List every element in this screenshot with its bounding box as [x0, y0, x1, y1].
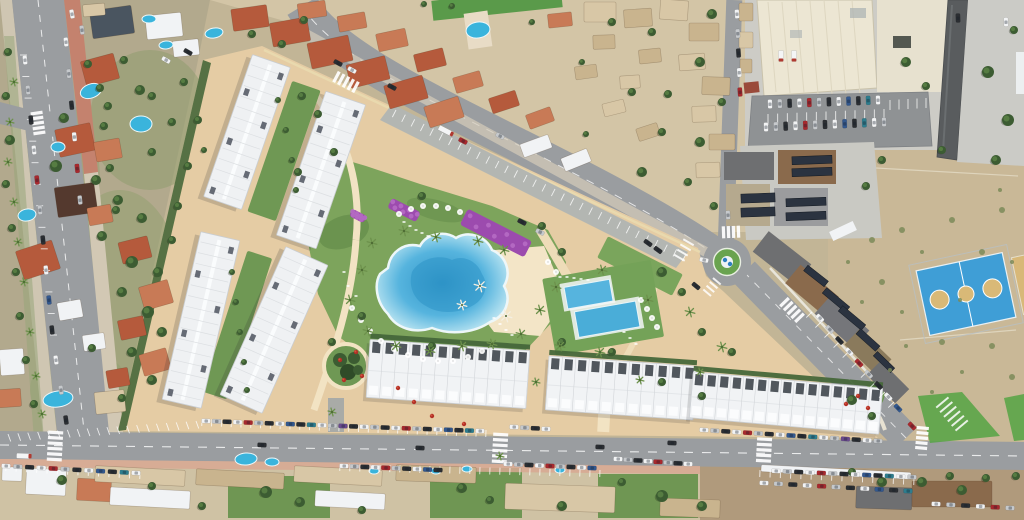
sun-lounger	[505, 329, 508, 331]
umbrella-pole	[640, 299, 641, 300]
sun-lounger	[421, 232, 424, 234]
car	[509, 425, 518, 430]
car	[349, 424, 358, 429]
tree-highlight	[419, 193, 423, 197]
umbrella-pole	[380, 340, 381, 341]
flowering-shrub-highlight	[866, 406, 868, 408]
tree-highlight	[202, 148, 205, 151]
car	[976, 504, 985, 509]
pergola	[770, 381, 779, 393]
sun-lounger	[347, 285, 350, 287]
villa-roof	[57, 299, 84, 321]
car	[286, 422, 295, 427]
car	[759, 481, 768, 486]
roof-unit	[790, 30, 802, 38]
flowering-shrub-highlight	[844, 402, 846, 404]
tree-highlight	[5, 49, 9, 53]
tree-highlight	[902, 58, 907, 63]
tree-highlight	[450, 4, 453, 7]
tree-highlight	[918, 478, 923, 483]
tree-highlight	[638, 168, 643, 173]
tree-highlight	[1004, 116, 1010, 122]
car	[817, 471, 826, 476]
car	[360, 465, 369, 470]
car	[531, 426, 540, 431]
car	[37, 205, 42, 214]
sun-lounger	[629, 337, 632, 339]
terrace	[628, 404, 638, 414]
car	[725, 210, 730, 219]
terrace	[408, 388, 418, 398]
kiosk-roof	[744, 81, 760, 94]
townhouse-row	[542, 350, 697, 424]
car	[876, 95, 881, 104]
car	[819, 435, 828, 440]
tree-highlight	[679, 289, 683, 293]
roundabout-sculpture-detail	[723, 258, 727, 262]
car	[360, 424, 369, 429]
tree-highlight	[148, 376, 153, 381]
car	[503, 462, 512, 467]
tree-highlight	[249, 31, 253, 35]
house-roof	[739, 3, 753, 21]
car	[896, 474, 905, 479]
tree-highlight	[708, 10, 713, 15]
house-roof	[623, 8, 652, 28]
house-roof	[547, 12, 572, 28]
terrace	[515, 396, 525, 406]
aerial-photo-stage	[0, 0, 1024, 520]
pergola	[605, 362, 614, 374]
tree-highlight	[98, 232, 103, 237]
car	[328, 423, 337, 428]
pergola	[871, 389, 880, 401]
swimming-pool	[130, 116, 152, 132]
flowering-shrub-highlight	[462, 422, 464, 424]
car	[37, 465, 46, 470]
terrace	[382, 386, 392, 396]
townhouse-row	[363, 333, 530, 412]
sun-lounger	[623, 331, 626, 333]
car	[254, 421, 263, 426]
house-roof	[315, 490, 386, 510]
house-roof	[692, 106, 717, 123]
car	[807, 98, 812, 107]
umbrella-pole	[646, 308, 647, 309]
pergola	[645, 365, 654, 377]
terrace	[448, 391, 458, 401]
shrub	[939, 339, 945, 345]
tree-highlight	[52, 162, 58, 168]
tree-highlight	[878, 478, 883, 483]
umbrella-pole	[435, 205, 436, 206]
car	[643, 459, 652, 464]
tree-highlight	[181, 79, 185, 83]
car	[577, 465, 586, 470]
house-roof	[709, 134, 735, 150]
shrub	[899, 227, 905, 233]
car	[793, 121, 798, 130]
car	[371, 465, 380, 470]
umbrella-pole	[467, 356, 468, 357]
car	[233, 420, 242, 425]
sun-lounger	[573, 277, 576, 279]
terrace	[818, 417, 828, 427]
car	[851, 472, 860, 477]
sun-lounger	[403, 221, 406, 223]
car	[108, 469, 117, 474]
terrace	[691, 406, 701, 416]
shrub	[999, 207, 1005, 213]
car	[797, 434, 806, 439]
villa-roof	[0, 388, 22, 407]
tree-highlight	[138, 214, 143, 219]
tree-highlight	[947, 473, 951, 477]
tree-highlight	[279, 41, 283, 45]
car	[49, 466, 58, 471]
umbrella-pole	[351, 307, 352, 308]
car	[423, 467, 432, 472]
shrub	[900, 310, 904, 314]
umbrella-pole	[422, 358, 423, 359]
tree-highlight	[992, 156, 997, 161]
car	[13, 464, 22, 469]
tree-highlight	[649, 29, 653, 33]
shrub	[958, 298, 962, 302]
tree-highlight	[584, 132, 587, 135]
car	[77, 195, 82, 204]
car	[768, 99, 773, 108]
tree-highlight	[359, 313, 363, 317]
tree-highlight	[699, 393, 703, 397]
garden-tree-cluster	[353, 365, 363, 375]
sun-lounger	[355, 295, 358, 297]
shrub	[1009, 374, 1015, 380]
terrace	[755, 411, 765, 421]
tree-highlight	[869, 413, 873, 417]
terrace	[655, 405, 665, 415]
car	[212, 419, 221, 424]
umbrella-pole	[459, 211, 460, 212]
car	[805, 470, 814, 475]
car	[413, 467, 422, 472]
car	[786, 433, 795, 438]
car	[454, 428, 463, 433]
car	[350, 464, 359, 469]
tree-highlight	[89, 345, 93, 349]
terrace	[561, 399, 571, 409]
commercial-roof	[724, 152, 774, 180]
terrace	[588, 401, 598, 411]
car	[75, 164, 80, 173]
car	[296, 422, 305, 427]
car	[875, 487, 884, 492]
pergola	[518, 352, 527, 364]
car	[787, 99, 792, 108]
car	[817, 98, 822, 107]
pergola	[821, 385, 830, 397]
terrace	[642, 405, 652, 415]
car	[842, 119, 847, 128]
tree-highlight	[158, 328, 163, 333]
tree-highlight	[530, 20, 533, 23]
car	[275, 421, 284, 426]
tree-highlight	[729, 349, 733, 353]
tree-highlight	[295, 169, 299, 173]
car	[873, 438, 882, 443]
east-concrete-yard	[957, 0, 1024, 166]
car	[846, 485, 855, 490]
car	[96, 469, 105, 474]
car	[743, 430, 752, 435]
tree-highlight	[696, 58, 701, 63]
umbrella-pole	[651, 317, 652, 318]
tree-highlight	[665, 91, 669, 95]
car	[244, 420, 253, 425]
pergola	[618, 363, 627, 375]
tree-highlight	[169, 119, 173, 123]
terrace	[742, 410, 752, 420]
car	[797, 98, 802, 107]
tree-highlight	[276, 98, 279, 101]
tree-highlight	[242, 360, 245, 363]
swimming-pool	[142, 15, 156, 23]
umbrella-pole	[555, 271, 556, 272]
terrace	[780, 414, 790, 424]
flowering-shrub-highlight	[338, 358, 340, 360]
car	[862, 473, 871, 478]
tree-highlight	[97, 85, 101, 89]
car	[66, 69, 71, 78]
tree-highlight	[149, 149, 153, 153]
tree-highlight	[487, 497, 491, 501]
umbrella-pole	[398, 213, 399, 214]
car	[465, 428, 474, 433]
sun-lounger	[427, 235, 430, 237]
tree-highlight	[114, 196, 119, 201]
tree-highlight	[359, 507, 363, 511]
flowering-shrub-highlight	[430, 414, 432, 416]
car	[307, 422, 316, 427]
tree-highlight	[699, 329, 703, 333]
tree-highlight	[984, 68, 990, 74]
villa-roof	[106, 367, 131, 389]
umbrella-pole	[410, 208, 411, 209]
tree-highlight	[315, 111, 319, 115]
car	[862, 118, 867, 127]
flowering-shrub-highlight	[412, 400, 414, 402]
pergola	[438, 346, 447, 358]
car	[710, 428, 719, 433]
car	[514, 462, 523, 467]
tree-highlight	[3, 93, 7, 97]
pergola	[745, 378, 754, 390]
car	[392, 466, 401, 471]
car	[872, 118, 877, 127]
flowering-shrub-highlight	[360, 374, 362, 376]
umbrella-pole	[447, 207, 448, 208]
pergola	[783, 382, 792, 394]
pergola	[758, 380, 767, 392]
car	[765, 432, 774, 437]
shrub	[960, 370, 964, 374]
terrace	[502, 395, 512, 405]
car	[885, 474, 894, 479]
shrub	[869, 237, 875, 243]
sun-lounger	[511, 334, 514, 336]
car	[22, 55, 27, 64]
car	[433, 468, 442, 473]
tree-highlight	[105, 103, 109, 107]
car	[595, 445, 604, 450]
sun-lounger	[493, 317, 496, 319]
terrace	[843, 419, 853, 429]
tree-highlight	[136, 86, 141, 91]
sun-lounger	[499, 323, 502, 325]
car	[257, 443, 266, 448]
car	[402, 426, 411, 431]
car	[433, 427, 442, 432]
tree-highlight	[558, 502, 563, 507]
car	[663, 460, 672, 465]
car	[775, 432, 784, 437]
tree-highlight	[580, 60, 583, 63]
pergola	[492, 350, 501, 362]
terrace	[548, 398, 558, 408]
car	[339, 464, 348, 469]
commercial-roof	[726, 184, 770, 226]
pergola	[591, 361, 600, 373]
car	[556, 464, 565, 469]
pergola	[808, 384, 817, 396]
shrub	[1010, 260, 1014, 264]
car	[866, 96, 871, 105]
pergola	[707, 375, 716, 387]
pergola	[732, 377, 741, 389]
flowering-shrub-highlight	[354, 350, 356, 352]
car	[412, 426, 421, 431]
car	[49, 325, 54, 334]
shrub	[846, 260, 850, 264]
house-roof	[620, 75, 641, 89]
car	[535, 463, 544, 468]
solar-panel-array	[786, 211, 826, 220]
villa-roof	[83, 3, 106, 17]
solar-panel-array	[741, 193, 775, 203]
tree-highlight	[58, 476, 63, 481]
car	[46, 295, 51, 304]
car	[28, 115, 33, 124]
solar-panel-array	[786, 197, 826, 206]
tree-highlight	[923, 83, 927, 87]
tree-highlight	[939, 147, 943, 151]
car	[653, 460, 662, 465]
pergola	[505, 351, 514, 363]
terrace	[855, 420, 865, 430]
roof-unit	[850, 8, 866, 18]
car	[131, 471, 140, 476]
tree-highlight	[329, 339, 333, 343]
house-roof	[231, 5, 270, 32]
flowering-shrub-highlight	[396, 386, 398, 388]
solar-panel-array	[792, 167, 832, 176]
tree-highlight	[458, 484, 463, 489]
car	[1, 464, 10, 469]
tree-highlight	[294, 188, 297, 191]
umbrella-pole	[407, 354, 408, 355]
car	[737, 87, 742, 96]
pergola	[578, 360, 587, 372]
sun-lounger	[580, 278, 583, 280]
tree-highlight	[296, 498, 301, 503]
car	[475, 429, 484, 434]
pergola	[859, 388, 868, 400]
tree-highlight	[609, 349, 613, 353]
shrub	[860, 300, 864, 304]
umbrella-pole	[481, 350, 482, 351]
car	[873, 473, 882, 478]
tree-highlight	[31, 401, 35, 405]
commercial-roof	[778, 150, 836, 184]
car	[40, 235, 45, 244]
villa-roof	[172, 39, 200, 58]
car	[862, 438, 871, 443]
tree-highlight	[1013, 473, 1017, 477]
car	[832, 120, 837, 129]
shrub	[989, 343, 995, 349]
terrace	[575, 400, 585, 410]
terrace	[369, 386, 379, 396]
terrace	[669, 406, 679, 416]
tree-highlight	[128, 348, 133, 353]
car	[956, 13, 961, 22]
umbrella-pole	[547, 261, 548, 262]
tree-highlight	[13, 269, 17, 273]
car	[736, 48, 741, 57]
pergola	[631, 364, 640, 376]
tree-highlight	[234, 300, 237, 303]
house-roof	[638, 48, 661, 64]
garden-tree-cluster	[348, 352, 360, 364]
house-roof	[574, 64, 598, 80]
pergola	[720, 376, 729, 388]
car	[852, 437, 861, 442]
flowering-shrub-highlight	[342, 378, 344, 380]
car	[783, 122, 788, 131]
terrace	[717, 408, 727, 418]
tree-highlight	[658, 492, 664, 498]
tree-highlight	[958, 486, 963, 491]
car	[764, 122, 769, 131]
sun-lounger	[566, 276, 569, 278]
car	[265, 421, 274, 426]
car	[613, 457, 622, 462]
car	[931, 502, 940, 507]
car	[415, 446, 424, 451]
terrace	[704, 407, 714, 417]
tree-highlight	[983, 475, 987, 479]
shrub	[998, 188, 1002, 192]
tree-highlight	[199, 503, 203, 507]
sun-lounger	[587, 279, 590, 281]
terrace	[868, 421, 878, 431]
car	[1005, 506, 1014, 511]
car	[60, 467, 69, 472]
tree-highlight	[23, 357, 27, 361]
tree-highlight	[9, 225, 13, 229]
truck	[16, 453, 31, 459]
terrace	[462, 392, 472, 402]
